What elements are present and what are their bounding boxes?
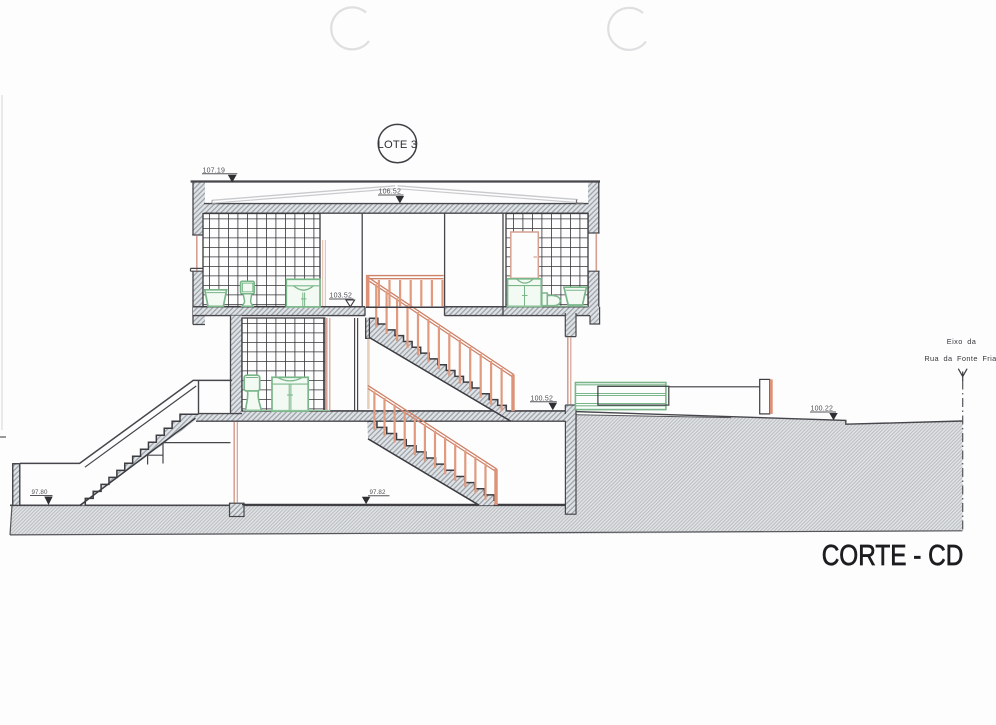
- svg-text:103.52: 103.52: [330, 293, 353, 300]
- svg-text:Eixo da: Eixo da: [947, 337, 977, 346]
- svg-text:100.22: 100.22: [811, 406, 834, 413]
- svg-text:CORTE - CD: CORTE - CD: [822, 539, 964, 571]
- svg-text:106.52: 106.52: [379, 189, 402, 196]
- svg-text:LOTE 3: LOTE 3: [378, 139, 418, 151]
- svg-text:100.52: 100.52: [531, 395, 554, 402]
- svg-text:97.82: 97.82: [370, 489, 386, 496]
- svg-text:Rua da Fonte Fria: Rua da Fonte Fria: [924, 354, 996, 363]
- svg-text:97.80: 97.80: [32, 489, 48, 496]
- svg-text:107.19: 107.19: [203, 167, 226, 174]
